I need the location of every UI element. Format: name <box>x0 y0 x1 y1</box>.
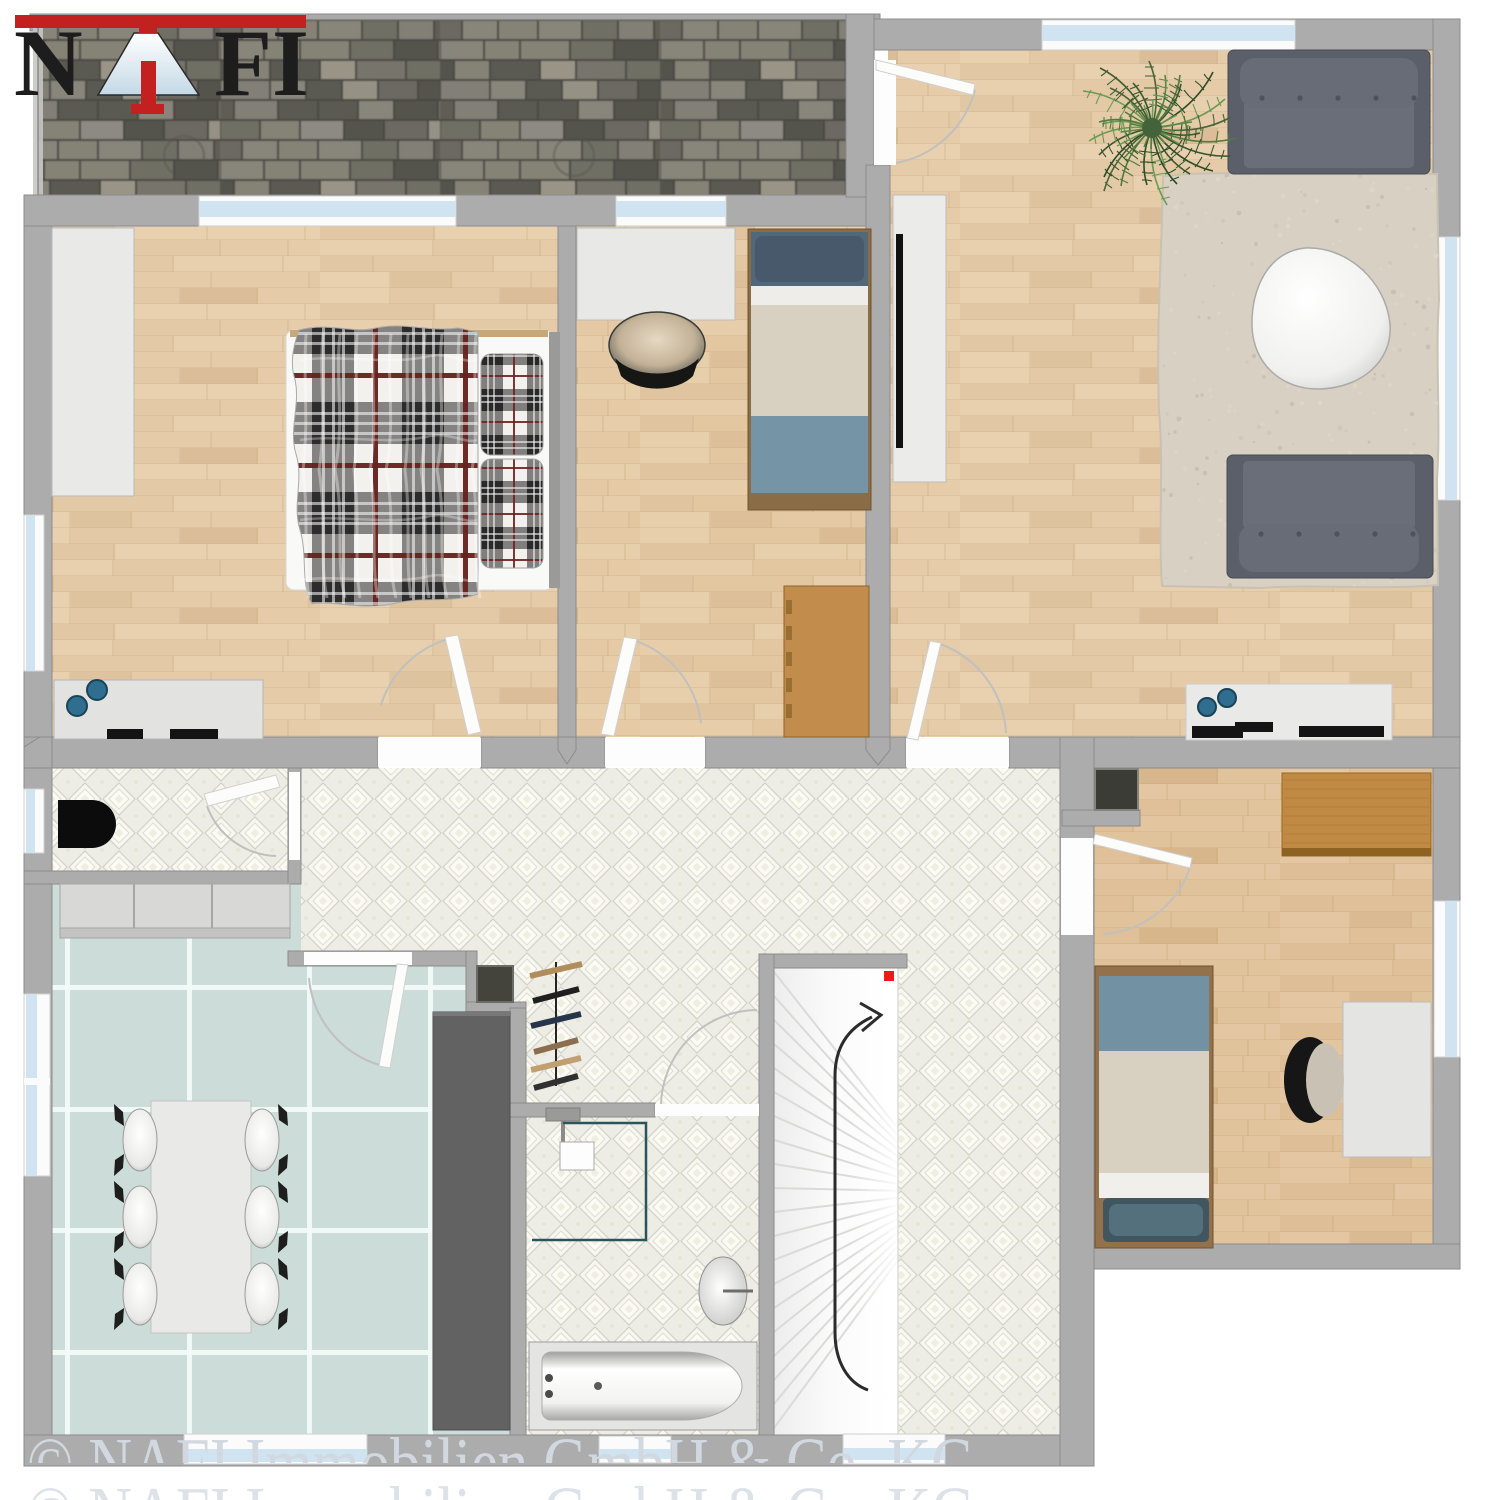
svg-text:© NAFI Immobilien GmbH & Co. K: © NAFI Immobilien GmbH & Co. KG <box>27 1472 975 1500</box>
svg-text:FI: FI <box>214 10 309 116</box>
svg-text:N: N <box>14 10 83 116</box>
